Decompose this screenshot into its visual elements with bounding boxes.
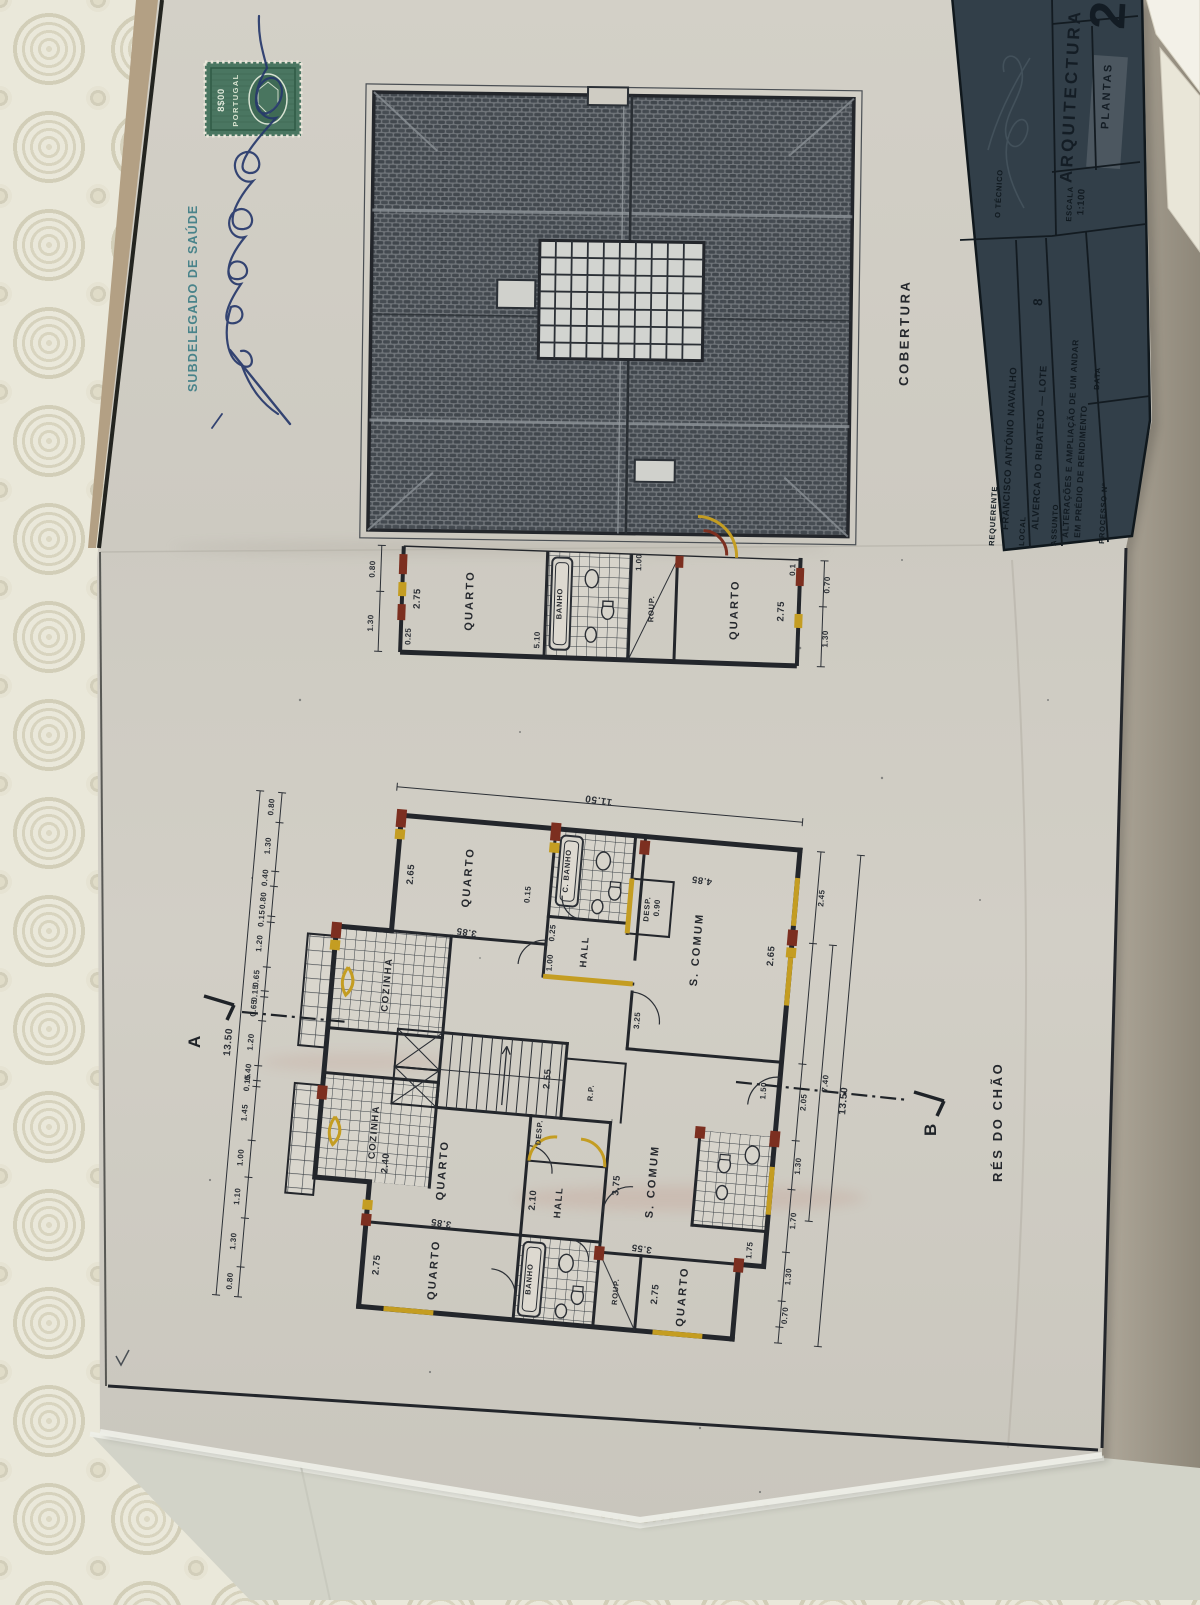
svg-text:1.30: 1.30 xyxy=(263,837,273,855)
svg-text:1.70: 1.70 xyxy=(788,1212,798,1230)
photographed-architectural-plan: COBERTURA BANHO QUARTO ROUP. QUARTO xyxy=(0,0,1200,1600)
sheet-number: 2 xyxy=(1079,0,1136,31)
svg-text:2.40: 2.40 xyxy=(379,1152,392,1173)
svg-text:0.15: 0.15 xyxy=(256,909,266,927)
svg-text:R.P.: R.P. xyxy=(585,1084,595,1102)
svg-text:0.25: 0.25 xyxy=(547,924,557,942)
roof-chimney-2 xyxy=(635,460,675,483)
roof-plan-title: COBERTURA xyxy=(896,279,913,386)
svg-text:0.80: 0.80 xyxy=(258,891,268,909)
escala-label: ESCALA xyxy=(1064,186,1075,222)
svg-text:1.00: 1.00 xyxy=(545,954,555,972)
local-label: LOCAL xyxy=(1017,516,1028,546)
svg-text:0.40: 0.40 xyxy=(260,868,270,886)
svg-text:1.30: 1.30 xyxy=(366,614,376,632)
svg-text:2.75: 2.75 xyxy=(370,1254,383,1276)
svg-text:5.10: 5.10 xyxy=(532,631,542,649)
svg-text:0.70: 0.70 xyxy=(780,1306,790,1324)
strip-bath-label: BANHO xyxy=(554,588,564,620)
svg-text:2.10: 2.10 xyxy=(527,1189,540,1210)
roof-chimney xyxy=(497,280,535,309)
svg-text:B: B xyxy=(921,1123,940,1136)
svg-text:0.80: 0.80 xyxy=(225,1272,235,1290)
stamp-value: 8$00 xyxy=(216,88,227,112)
photo-scene: { "colors": { "drawing_ink": "#24272c", … xyxy=(0,0,1200,1600)
svg-text:1.00: 1.00 xyxy=(634,553,644,571)
strip-room-left: QUARTO xyxy=(463,570,477,631)
svg-text:1.75: 1.75 xyxy=(744,1241,754,1259)
svg-text:0.90: 0.90 xyxy=(652,899,662,917)
svg-text:0.70: 0.70 xyxy=(822,576,832,594)
roof-plan xyxy=(360,84,862,545)
svg-text:A: A xyxy=(185,1035,204,1048)
fiscal-stamp: 8$00 PORTUGAL xyxy=(205,62,301,136)
strip-room-right: QUARTO xyxy=(728,579,742,640)
svg-text:1.45: 1.45 xyxy=(239,1104,249,1122)
svg-text:2.55: 2.55 xyxy=(541,1068,554,1090)
svg-text:2.65: 2.65 xyxy=(765,945,778,967)
svg-text:2.75: 2.75 xyxy=(775,601,787,622)
svg-text:2.75: 2.75 xyxy=(649,1283,662,1305)
svg-text:0.80: 0.80 xyxy=(266,798,276,816)
data-label: DATA xyxy=(1092,367,1102,390)
roof-skylight xyxy=(538,240,704,360)
pink-stain xyxy=(515,1185,865,1211)
svg-text:0.15: 0.15 xyxy=(522,885,532,903)
svg-text:3.25: 3.25 xyxy=(632,1011,642,1029)
escala-value: 1:100 xyxy=(1075,188,1087,215)
svg-text:1.30: 1.30 xyxy=(783,1268,793,1286)
strip-closet-label: ROUP. xyxy=(646,595,656,622)
health-authority-stamp-text: SUBDELEGADO DE SAÚDE xyxy=(185,205,200,392)
lote-number: 8 xyxy=(1030,298,1045,306)
svg-text:1.20: 1.20 xyxy=(254,934,264,952)
svg-text:0.25: 0.25 xyxy=(403,627,413,645)
svg-text:1.30: 1.30 xyxy=(228,1232,238,1250)
svg-text:0.1: 0.1 xyxy=(788,563,797,576)
svg-text:2.65: 2.65 xyxy=(405,863,418,885)
svg-text:7.40: 7.40 xyxy=(820,1074,830,1092)
svg-text:2.75: 2.75 xyxy=(412,588,424,609)
svg-text:1.00: 1.00 xyxy=(235,1148,245,1166)
svg-text:1.30: 1.30 xyxy=(793,1157,803,1175)
ground-plan-title: RÉS DO CHÃO xyxy=(990,1062,1005,1182)
svg-text:2.05: 2.05 xyxy=(798,1093,808,1111)
svg-text:3.75: 3.75 xyxy=(610,1174,623,1196)
roof-notch xyxy=(588,87,628,106)
svg-text:2.45: 2.45 xyxy=(816,889,826,907)
stamp-country: PORTUGAL xyxy=(231,73,240,126)
svg-text:0.80: 0.80 xyxy=(368,560,378,578)
svg-text:1.20: 1.20 xyxy=(246,1033,256,1051)
svg-text:1.10: 1.10 xyxy=(232,1187,242,1205)
svg-text:0.15: 0.15 xyxy=(242,1074,252,1092)
svg-text:1.30: 1.30 xyxy=(821,630,831,648)
